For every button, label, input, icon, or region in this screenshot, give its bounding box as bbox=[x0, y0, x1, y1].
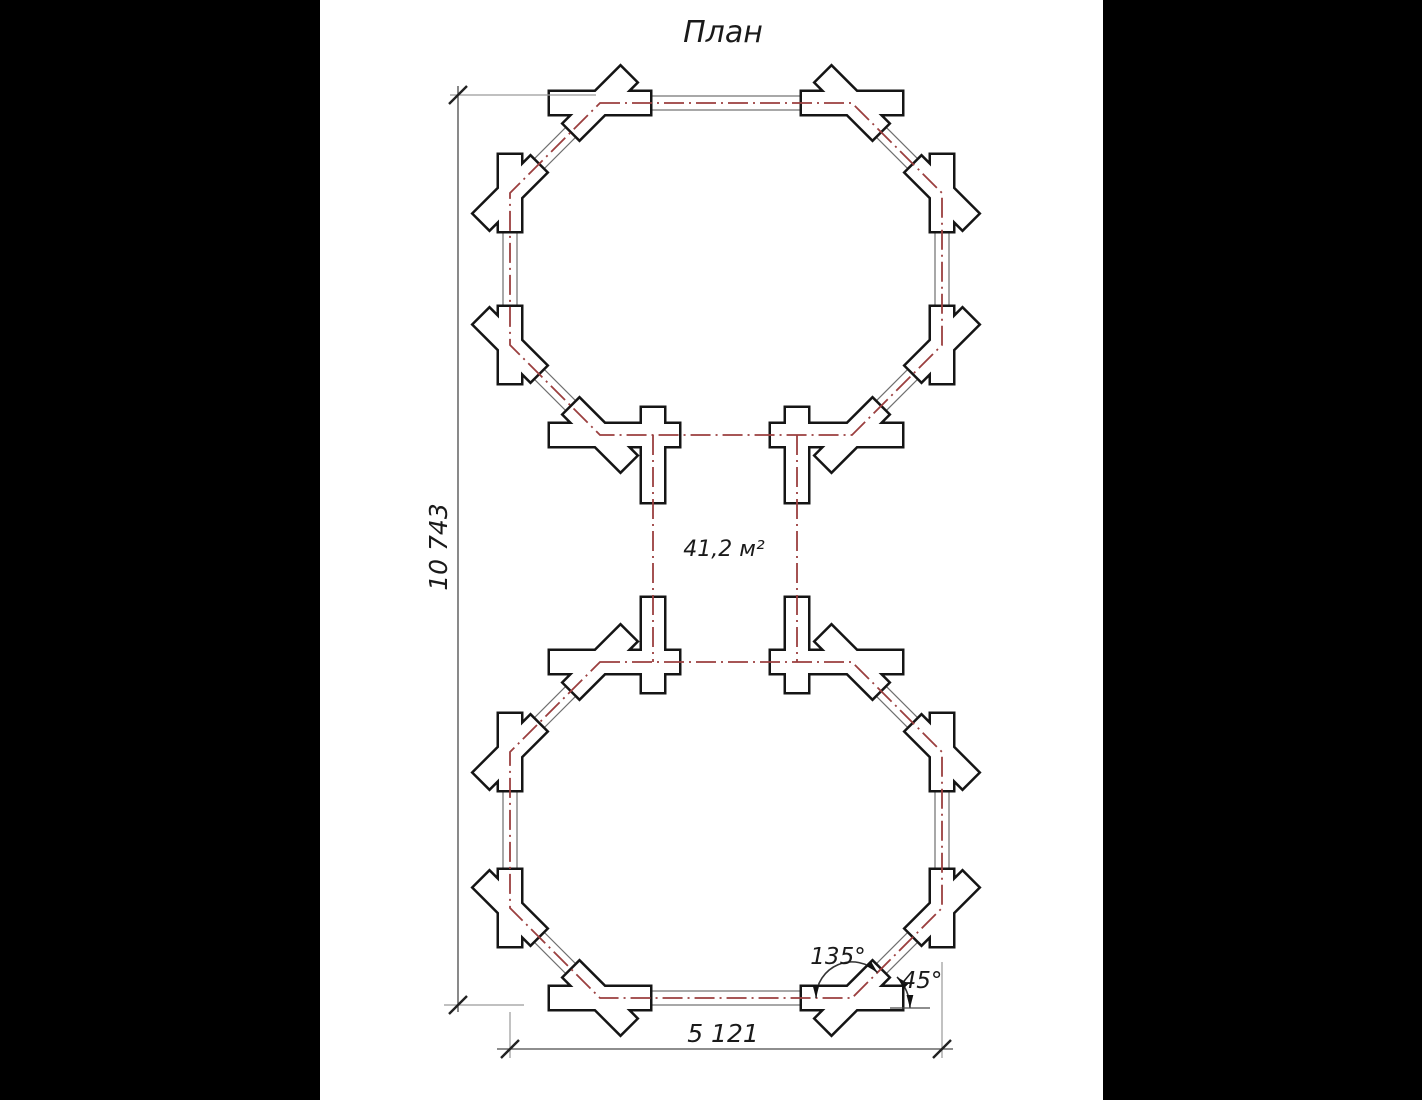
width-dimension-text: 5 121 bbox=[687, 1019, 759, 1048]
area-label: 41,2 м² bbox=[683, 537, 765, 562]
floor-plan-canvas: План 41,2 м² 10 743 bbox=[0, 0, 1422, 1100]
plan-title: План bbox=[683, 15, 763, 50]
height-dimension-text: 10 743 bbox=[424, 503, 453, 590]
floor-plan-page: План 41,2 м² 10 743 bbox=[0, 0, 1422, 1100]
angle-135-text: 135° bbox=[810, 944, 865, 970]
angle-45-text: 45° bbox=[902, 968, 943, 994]
